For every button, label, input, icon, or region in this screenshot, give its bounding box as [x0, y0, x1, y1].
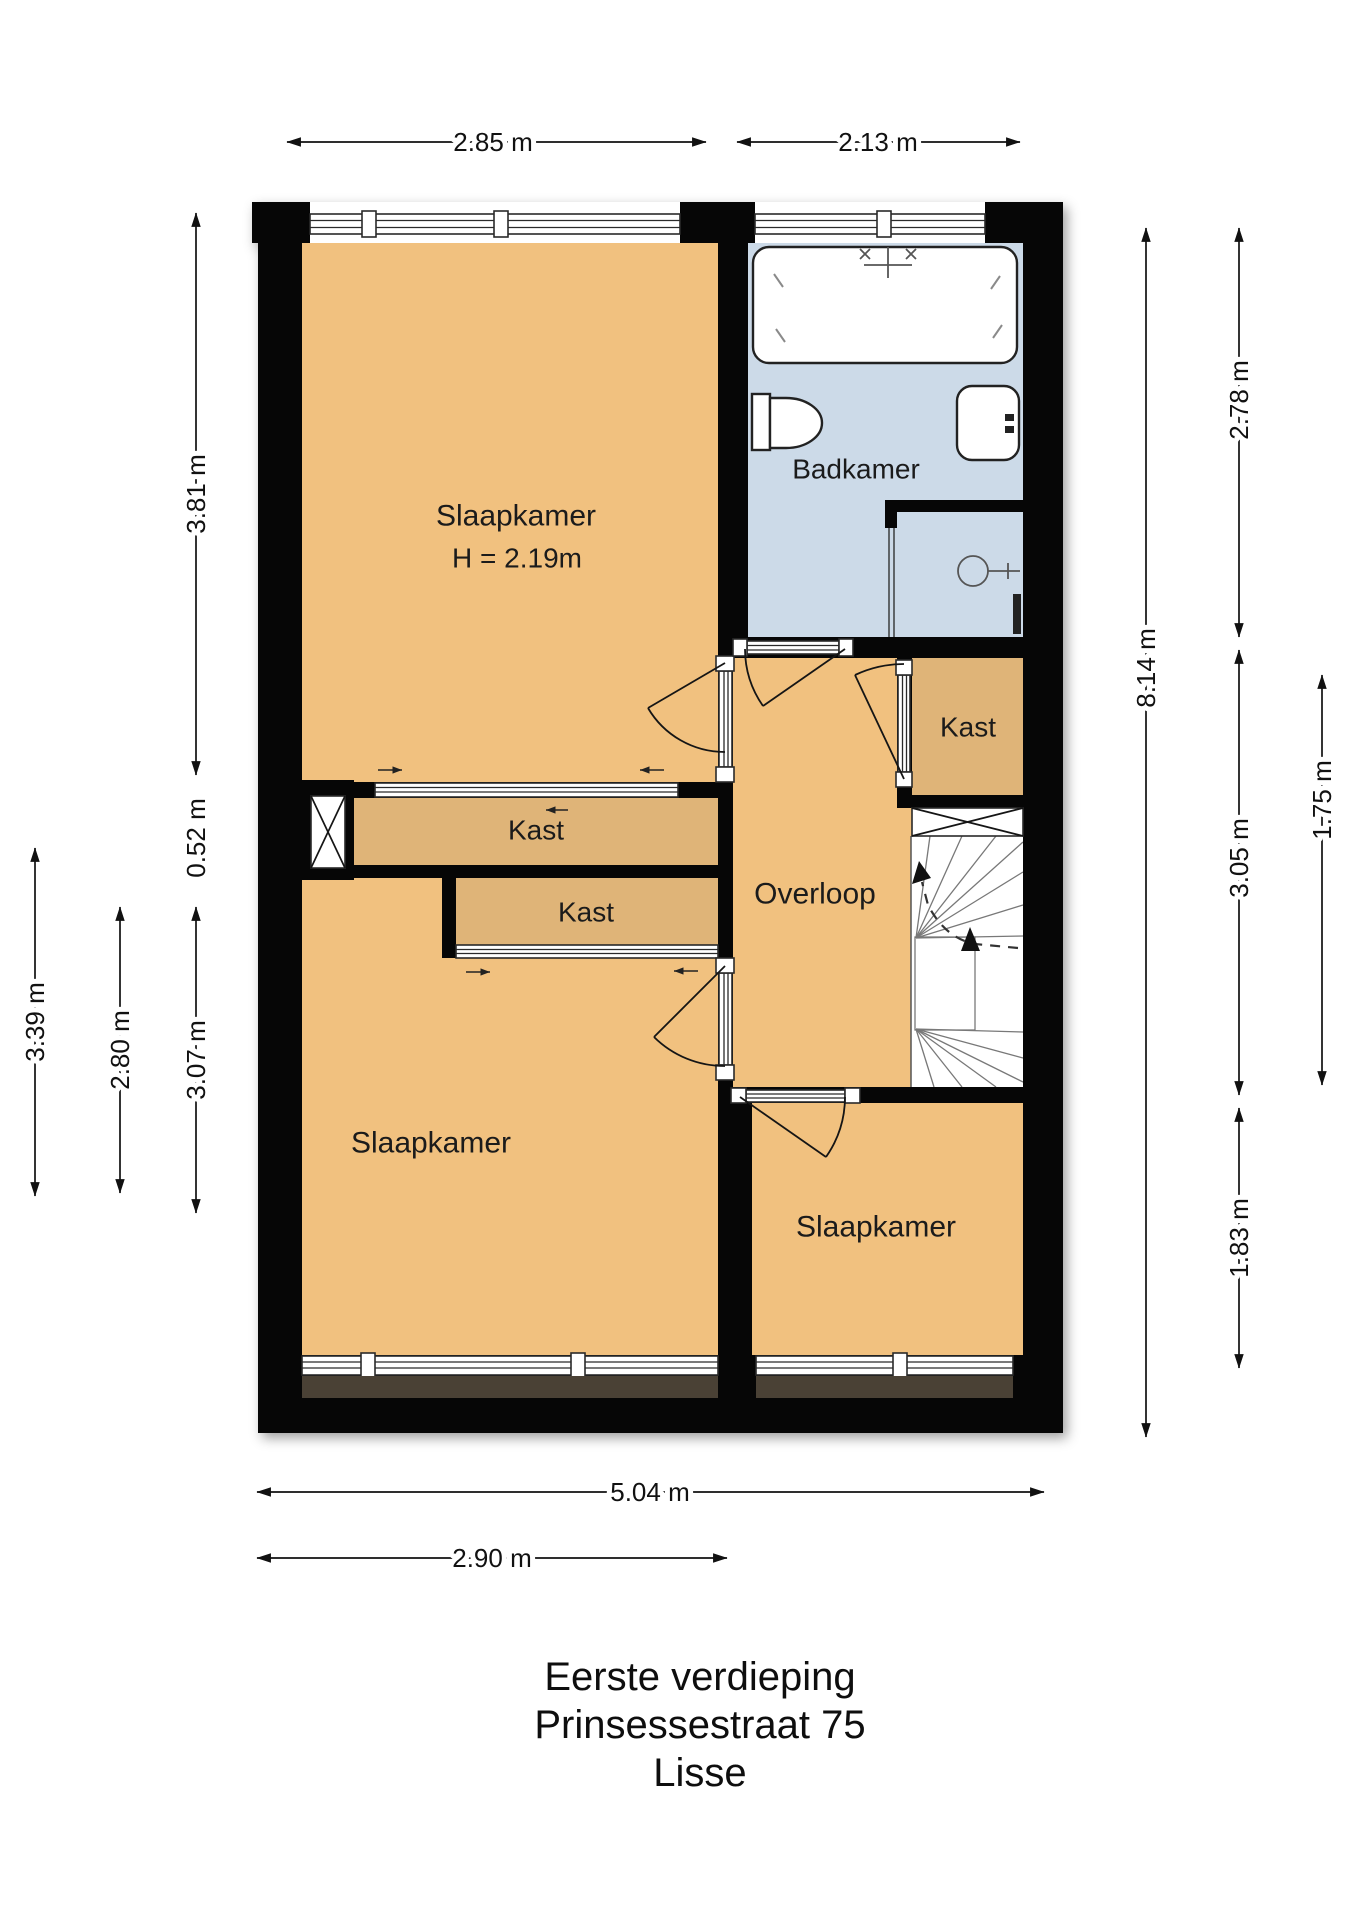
dim-bottom-left-room: 2.90 m — [257, 1543, 727, 1573]
label-kast-upper: Kast — [508, 815, 564, 846]
sill-panel — [302, 1376, 718, 1398]
label-badkamer: Badkamer — [792, 454, 920, 485]
door-strip — [898, 675, 910, 772]
dim-left-mid: 2.80 m — [105, 907, 135, 1193]
window-top-left — [310, 211, 680, 237]
dim-label: 2.78 m — [1224, 360, 1254, 440]
door-post — [716, 1065, 734, 1080]
dim-label: 1.83 m — [1224, 1198, 1254, 1278]
title-city: Lisse — [653, 1751, 746, 1795]
window-bottom-right — [756, 1353, 1013, 1398]
dim-bottom-total: 5.04 m — [257, 1477, 1044, 1507]
wall-shower-top — [885, 500, 1023, 512]
title-street: Prinsessestraat 75 — [534, 1703, 865, 1747]
floorplan-svg: Slaapkamer H = 2.19m Badkamer Kast Kast … — [0, 0, 1358, 1920]
stairs — [911, 836, 1023, 1087]
dim-label: 2.80 m — [105, 1010, 135, 1090]
dim-label: 3.05 m — [1224, 818, 1254, 898]
wall-shower-left-stub — [885, 500, 897, 528]
door-post — [896, 660, 912, 675]
sink-basin — [957, 386, 1019, 460]
wall-between-bedrooms — [718, 1103, 752, 1355]
floor-plan: Slaapkamer H = 2.19m Badkamer Kast Kast … — [252, 202, 1063, 1433]
sliding-door-kast-lower — [456, 945, 718, 958]
label-overloop: Overloop — [754, 878, 876, 911]
dim-left-bottom-room: 3.07 m — [181, 907, 211, 1213]
door-strip — [719, 973, 732, 1065]
dim-right-total: 8.14 m — [1131, 228, 1161, 1437]
window-top-right — [755, 211, 985, 237]
sink-tap — [1005, 414, 1014, 421]
dim-right-stairs: 1.75 m — [1307, 675, 1337, 1085]
sill-panel — [756, 1376, 1013, 1398]
dim-label: 2.85 m — [453, 127, 533, 157]
door-strip — [747, 641, 839, 654]
dim-label: 8.14 m — [1131, 628, 1161, 708]
dim-label: 3.07 m — [181, 1020, 211, 1100]
toilet-cistern — [752, 394, 770, 450]
door-post — [839, 639, 853, 656]
label-kast-lower: Kast — [558, 897, 614, 928]
floorplan-page: Slaapkamer H = 2.19m Badkamer Kast Kast … — [0, 0, 1358, 1920]
window-mullion — [571, 1353, 585, 1378]
door-post — [896, 772, 912, 787]
window-mullion — [361, 1353, 375, 1378]
slide-track — [456, 945, 718, 958]
window-mullion — [893, 1353, 907, 1378]
dim-label: 1.75 m — [1307, 760, 1337, 840]
shower-panel — [1013, 594, 1021, 634]
dim-label: 5.04 m — [610, 1477, 690, 1507]
wall-kast-upper-bottom — [352, 865, 718, 878]
wall-kast-lower-left — [442, 878, 456, 958]
title-block: Eerste verdieping Prinsessestraat 75 Lis… — [534, 1655, 865, 1795]
dim-label: 3.39 m — [20, 982, 50, 1062]
wall-bath-left — [718, 243, 748, 658]
window-bottom-left — [302, 1353, 718, 1398]
label-slaapkamer-top: Slaapkamer — [436, 500, 596, 533]
window-glass — [755, 214, 985, 234]
wall-top-middle — [680, 202, 755, 243]
door-post — [716, 767, 734, 782]
dim-left-top-room: 3.81 m — [181, 213, 211, 775]
wall-left — [258, 202, 302, 1433]
dim-right-bath: 2.78 m — [1224, 228, 1254, 637]
dim-label: 3.81 m — [181, 454, 211, 534]
title-floor: Eerste verdieping — [544, 1655, 855, 1699]
label-slaapkamer-left: Slaapkamer — [351, 1127, 511, 1160]
door-strip — [746, 1090, 845, 1102]
window-glass — [756, 1356, 1013, 1375]
dim-top-right-width: 2.13 m — [737, 127, 1020, 157]
window-mullion — [494, 211, 508, 237]
door-opening-slaapkamer-left — [716, 958, 734, 1080]
wall-right — [1023, 202, 1063, 1433]
dim-label: 0.52 m — [181, 798, 211, 878]
label-height-note: H = 2.19m — [452, 543, 582, 574]
label-slaapkamer-right: Slaapkamer — [796, 1211, 956, 1244]
dim-label: 2.90 m — [452, 1543, 532, 1573]
window-mullion — [877, 211, 891, 237]
sink-tap — [1005, 426, 1014, 433]
dim-left-closet: 0.52 m — [181, 798, 211, 878]
door-opening-slaapkamer-right — [731, 1088, 860, 1103]
window-mullion — [362, 211, 376, 237]
sliding-door-kast-upper — [375, 783, 678, 797]
dim-right-mid: 3.05 m — [1224, 650, 1254, 1095]
dim-top-left-width: 2.85 m — [287, 127, 706, 157]
wall-kast-right-bottom — [897, 795, 1023, 808]
dim-right-bottom-room: 1.83 m — [1224, 1108, 1254, 1368]
label-kast-right: Kast — [940, 712, 996, 743]
door-opening-badkamer — [733, 639, 853, 656]
door-post — [845, 1088, 860, 1103]
dim-label: 2.13 m — [838, 127, 918, 157]
door-opening-slaapkamer-top — [716, 656, 734, 782]
dim-left-outer: 3.39 m — [20, 848, 50, 1196]
door-post — [716, 958, 734, 973]
door-post — [731, 1088, 746, 1103]
slide-track — [375, 783, 678, 797]
sink-icon — [957, 386, 1019, 460]
